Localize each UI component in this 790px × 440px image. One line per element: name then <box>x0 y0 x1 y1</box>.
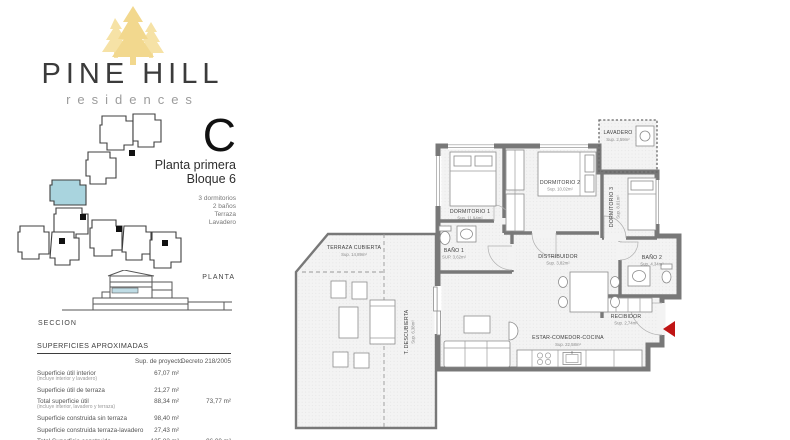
room-area: Sup. 11,94m² <box>457 216 483 221</box>
section-drawing <box>58 270 236 322</box>
sink <box>457 226 476 242</box>
room-area: Sup. 6,38m² <box>411 320 416 344</box>
toilet <box>439 226 451 245</box>
pine-trees-icon <box>85 4 181 66</box>
brand-tagline: residences <box>30 92 235 107</box>
row-project-value: 98,40 m² <box>135 415 179 422</box>
plan-sheet: PINE HILL residences C Planta primera Bl… <box>0 0 790 440</box>
site-unit <box>133 114 161 147</box>
surfaces-table: SUPERFICIES APROXIMADAS Sup. de proyecto… <box>37 341 231 440</box>
section-label: SECCION <box>38 320 77 327</box>
sink <box>628 266 650 286</box>
washer <box>636 126 654 146</box>
room-area: Sup. 22,58m² <box>555 342 581 347</box>
surface-row: Superficie útil interior (incluye interi… <box>37 370 231 383</box>
room-area: Sup. 4,34m² <box>640 262 664 267</box>
room-area: Sup. 10,02m² <box>547 187 573 192</box>
row-sublabel: (incluye interior, lavadero y terraza) <box>37 405 135 411</box>
row-decree-value: 73,77 m² <box>179 398 231 405</box>
room-area: Sup. 14,89m² <box>341 252 367 257</box>
site-unit <box>122 226 151 260</box>
sofa <box>444 341 510 367</box>
site-unit <box>18 226 49 259</box>
bed-single <box>628 178 656 230</box>
surface-row: Superficie construida terraza-lavadero 2… <box>37 427 231 434</box>
kitchen-sink <box>563 351 581 364</box>
brand-logo: PINE HILL residences <box>30 4 235 107</box>
coffee-table <box>464 316 490 333</box>
row-project-value: 21,27 m² <box>135 387 179 394</box>
room-area: SUP. 3,62m² <box>442 255 467 260</box>
surfaces-title: SUPERFICIES APROXIMADAS <box>37 341 231 354</box>
room-label: BAÑO 2 <box>642 254 662 261</box>
room-label: DORMITORIO 1 <box>450 209 490 215</box>
floor-plan: TERRAZA CUBIERTA Sup. 14,89m² T. DESCUBI… <box>282 98 707 438</box>
room-label: LAVADERO <box>603 130 632 136</box>
site-unit <box>90 220 122 256</box>
row-project-value: 67,07 m² <box>135 370 179 377</box>
toilet <box>661 264 672 283</box>
room-area: Sup. 3,82m² <box>546 261 570 266</box>
room-label: BAÑO 1 <box>444 247 464 254</box>
surfaces-header: Sup. de proyecto Decreto 218/2005 <box>37 358 231 365</box>
room-label: DORMITORIO 2 <box>540 180 580 186</box>
room-area: Sup. 2,74m² <box>614 321 638 326</box>
surface-row: Total superficie útil (incluye interior,… <box>37 398 231 411</box>
room-area: Sup. 2,59m² <box>606 137 630 142</box>
room-label: T. DESCUBIERTA <box>404 309 410 354</box>
site-plan <box>12 110 197 272</box>
site-unit-highlight <box>50 180 86 205</box>
column-decree: Decreto 218/2005 <box>179 358 231 365</box>
row-label: Superficie construida sin terraza <box>37 415 127 422</box>
room-label: DISTRIBUIDOR <box>538 254 578 260</box>
brand-name: PINE HILL <box>30 58 235 91</box>
site-unit <box>100 116 133 150</box>
row-label: Superficie útil de terraza <box>37 387 105 394</box>
room-label: DORMITORIO 3 <box>609 187 615 227</box>
row-sublabel: (incluye interior y lavadero) <box>37 377 135 383</box>
room-label: RECIBIDOR <box>611 314 642 320</box>
surface-row: Superficie útil de terraza 21,27 m² <box>37 387 231 394</box>
row-project-value: 88,34 m² <box>135 398 179 405</box>
section-floor-highlight <box>112 288 138 293</box>
room-area: Sup. 8,01m² <box>616 195 621 219</box>
row-label: Superficie construida terraza-lavadero <box>37 427 143 434</box>
room-label: ESTAR-COMEDOR-COCINA <box>532 335 604 341</box>
bed-double <box>450 152 496 206</box>
column-project: Sup. de proyecto <box>135 358 179 365</box>
site-unit <box>150 232 181 268</box>
kitchen-counter <box>517 350 642 367</box>
site-unit <box>86 152 116 184</box>
surface-row: Superficie construida sin terraza 98,40 … <box>37 415 231 422</box>
room-label: TERRAZA CUBIERTA <box>327 245 382 251</box>
sliding-door <box>434 286 442 335</box>
row-project-value: 27,43 m² <box>135 427 179 434</box>
